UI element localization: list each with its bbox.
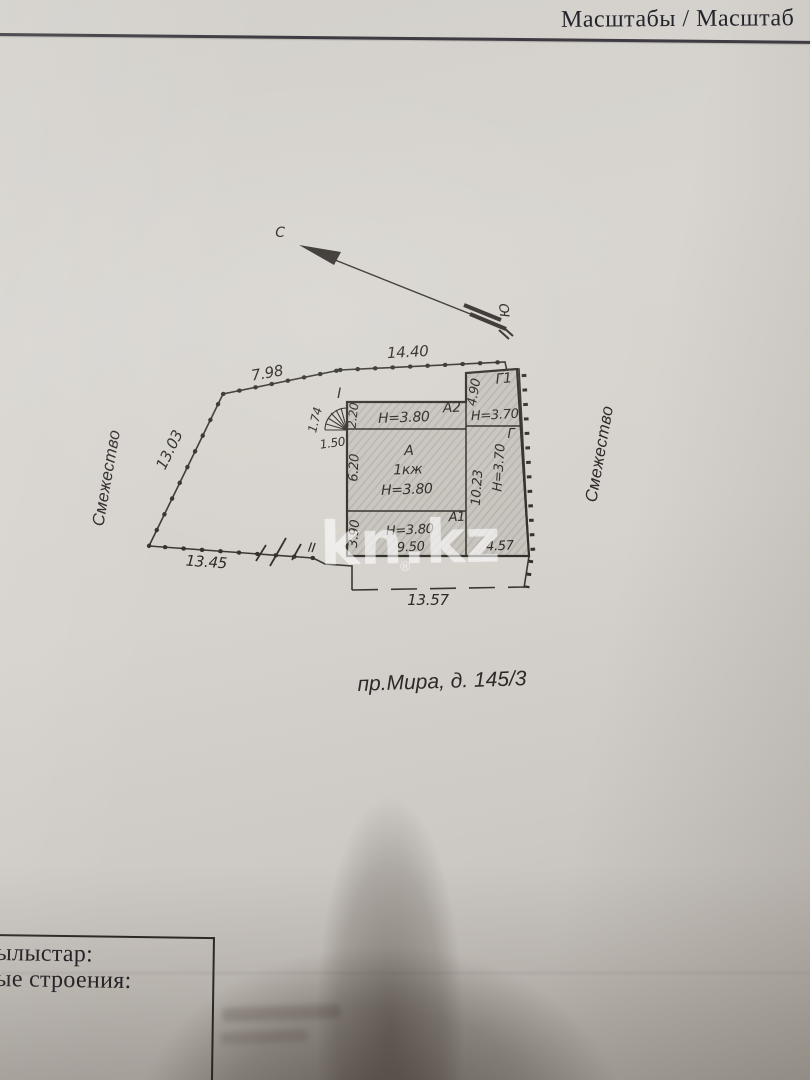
paper-crease-line: [0, 972, 810, 974]
room-a-height: H=3.80: [381, 481, 434, 499]
legend-line-2: ые строения:: [0, 966, 213, 995]
room-a-floor: 1кж: [393, 461, 423, 478]
room-a-name: A: [403, 443, 414, 459]
room-a2-name: A2: [441, 400, 461, 417]
compass-south-label: Ю: [497, 303, 513, 318]
north-arrow: [299, 245, 513, 339]
fence-slash-marks: [256, 538, 301, 566]
dim-edge-n: 14.40: [387, 342, 429, 362]
room-g1-height: H=3.70: [471, 407, 520, 424]
room-a2-height: H=3.80: [378, 409, 431, 427]
dim-edge-s: 13.57: [407, 591, 449, 609]
stairs-mark: I: [337, 386, 341, 402]
photographed-technical-plan-page: Масштабы / Масштаб С Ю: [0, 0, 810, 1080]
stairs-dim-width: 1.74: [305, 406, 325, 434]
dim-edge-w: 13.03: [152, 427, 186, 472]
compass-north-label: С: [275, 225, 285, 241]
legend-box: ылыстар: ые строения:: [0, 934, 215, 1080]
room-g1-name: Г1: [495, 370, 512, 387]
dim-edge-nw: 7.98: [250, 361, 285, 384]
stairs-dim-depth: 1.50: [319, 434, 347, 452]
room-g-dim-left: 10.23: [469, 469, 486, 506]
room-a-dim-left: 6.20: [346, 454, 362, 483]
fence-mark-label: II: [307, 541, 317, 557]
registered-trademark-icon: ®: [400, 558, 410, 574]
legend-line-1: ылыстар:: [0, 940, 213, 969]
dim-edge-sw: 13.45: [185, 552, 228, 573]
